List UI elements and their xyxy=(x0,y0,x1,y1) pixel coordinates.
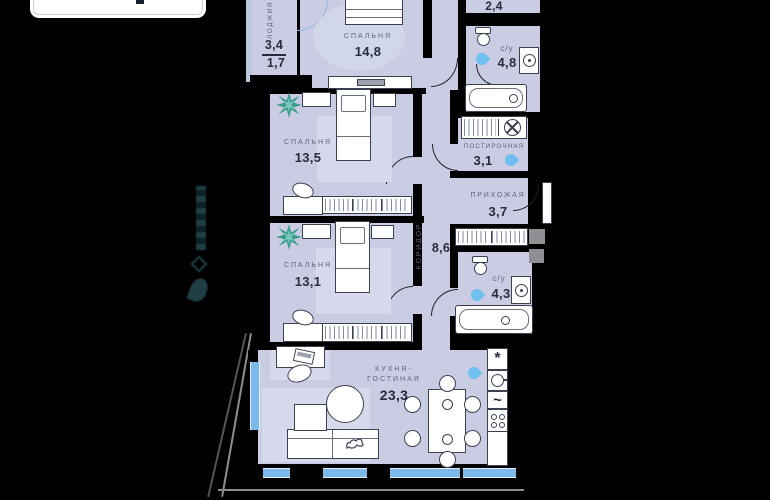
watermark-leaf xyxy=(186,276,210,304)
door-gap-bedroom-3 xyxy=(413,286,422,314)
window-bottom-3 xyxy=(390,468,460,478)
window-bottom-2 xyxy=(323,468,367,478)
laundry-counter-sink-cell xyxy=(498,119,524,136)
watermark-diamond xyxy=(191,256,208,273)
dining-chair-2 xyxy=(404,430,421,447)
room-name-bathroom-2: с/у xyxy=(483,274,515,283)
wall-corridor-left-a xyxy=(413,93,422,157)
room-name-bedroom-master: СПАЛЬНЯ xyxy=(331,33,405,40)
room-name-bedroom-3: СПАЛЬНЯ xyxy=(279,262,337,269)
entry-door-leaf xyxy=(542,182,552,224)
bathtub-bathroom-2 xyxy=(455,305,533,334)
laundry-basin-icon xyxy=(504,119,521,136)
window-bottom-4 xyxy=(463,468,516,478)
room-area-bedroom-master: 14,8 xyxy=(331,44,405,59)
wall-bathroom-2-bottom xyxy=(450,334,540,344)
dining-table xyxy=(428,389,466,453)
wall-laundry-bottom xyxy=(450,171,540,178)
plant-icon-bedroom-2 xyxy=(275,91,303,119)
tooltip-card xyxy=(30,0,206,18)
window-kitchen-left xyxy=(250,362,260,430)
plant-icon-bedroom-3 xyxy=(275,223,303,251)
nightstand-right-bedroom-2 xyxy=(373,93,396,107)
wall-wardrobe-bottom xyxy=(450,246,540,252)
wall-corridor-left-c xyxy=(413,314,422,350)
toilet-bathroom-1 xyxy=(474,27,492,48)
tooltip-card-glyph xyxy=(136,0,144,4)
hallway-closet-hatch-1 xyxy=(458,231,489,243)
room-area-hallway: 3,7 xyxy=(481,204,515,219)
room-area-corridor: 8,6 xyxy=(426,241,456,255)
dishwasher-icon: ~ xyxy=(487,393,508,408)
room-name-laundry: ПОСТИРОЧНАЯ xyxy=(462,143,526,150)
room-name-kitchen-line1: КУХНЯ- xyxy=(358,366,430,373)
kitchen-sink xyxy=(487,370,508,391)
wall-kitchen-right xyxy=(508,344,518,470)
bathtub-bathroom-1 xyxy=(465,84,527,112)
wall-bathroom-2-left-a xyxy=(450,252,458,288)
exterior-line-bottom xyxy=(218,489,524,491)
window-bottom-1 xyxy=(263,468,290,478)
wall-bedroom-3-bottom xyxy=(250,342,415,350)
closet-bedroom-3 xyxy=(322,323,412,342)
bed-bedroom-2 xyxy=(336,89,371,161)
wall-laundry-left-a xyxy=(450,118,458,144)
room-name-kitchen-line2: ГОСТИНАЯ xyxy=(354,376,434,383)
room-area-wardrobe: 2,4 xyxy=(479,0,509,13)
entry-landing-block-1 xyxy=(529,229,545,244)
nightstand-left-bedroom-3 xyxy=(302,224,331,239)
room-name-bathroom-1: с/у xyxy=(491,44,523,53)
room-area-bedroom-3: 13,1 xyxy=(279,274,337,289)
fridge-icon: * xyxy=(487,352,508,366)
room-area-kitchen: 23,3 xyxy=(368,387,420,403)
wall-wardrobe-room-bottom xyxy=(466,13,540,26)
nightstand-left-bedroom-2 xyxy=(302,92,331,107)
bed-bedroom-3 xyxy=(335,221,370,293)
tooltip-card-inner-border xyxy=(33,0,203,15)
hallway-closet xyxy=(455,228,528,246)
sofa-chaise xyxy=(294,404,327,431)
room-area-bathroom-2: 4,3 xyxy=(484,286,518,301)
closet-bedroom-2 xyxy=(322,196,412,214)
wall-outer-left xyxy=(258,75,270,347)
dining-chair-4 xyxy=(464,430,481,447)
watermark-text-column xyxy=(196,186,206,250)
door-gap-bedroom-2 xyxy=(413,157,422,184)
laundry-counter xyxy=(461,116,527,139)
loggia-glazing xyxy=(246,0,252,82)
room-area-loggia: 3,4 xyxy=(261,38,287,52)
watermark-logo xyxy=(182,186,216,316)
dog-icon xyxy=(344,434,366,452)
dining-chair-6 xyxy=(439,451,456,468)
room-name-corridor: КОРИДОР xyxy=(416,218,423,274)
stove xyxy=(487,409,508,432)
room-area-bedroom-2: 13,5 xyxy=(279,150,337,165)
tv-console-master xyxy=(328,76,412,89)
desk-bedroom-3 xyxy=(283,323,323,342)
nightstand-right-bedroom-3 xyxy=(371,225,394,239)
entry-landing-block-2 xyxy=(529,249,544,263)
room-name-bedroom-2: СПАЛЬНЯ xyxy=(279,139,337,146)
dining-chair-3 xyxy=(464,396,481,413)
room-area-bathroom-1: 4,8 xyxy=(491,55,523,70)
floor-plan-screenshot: СПАЛЬНЯ 14,8 ЛОДЖИЯ 3,4 1,7 2,4 с/у 4,8 … xyxy=(0,0,770,500)
wall-loggia-divider xyxy=(297,30,300,78)
desk-bedroom-2 xyxy=(283,196,323,215)
round-rug xyxy=(326,385,364,423)
room-name-hallway: ПРИХОЖАЯ xyxy=(463,192,533,199)
room-area-laundry: 3,1 xyxy=(468,153,498,168)
wall-bedroom-master-right xyxy=(423,0,432,58)
hallway-closet-hatch-2 xyxy=(491,231,525,243)
dining-chair-5 xyxy=(439,375,456,392)
laundry-counter-hatch xyxy=(464,119,496,136)
room-area-loggia-secondary: 1,7 xyxy=(263,56,289,70)
bed-master xyxy=(345,0,403,25)
